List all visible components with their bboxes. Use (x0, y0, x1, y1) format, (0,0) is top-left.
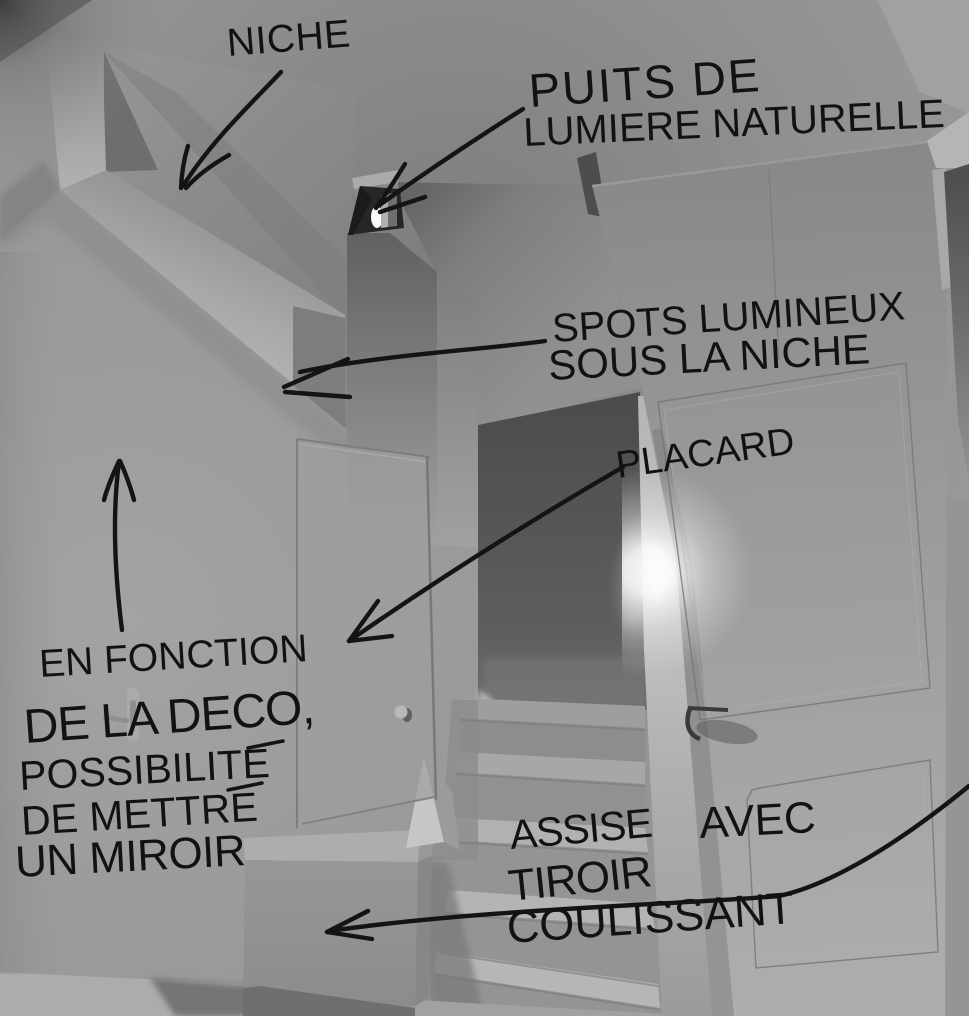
svg-text:AVEC: AVEC (698, 793, 817, 848)
